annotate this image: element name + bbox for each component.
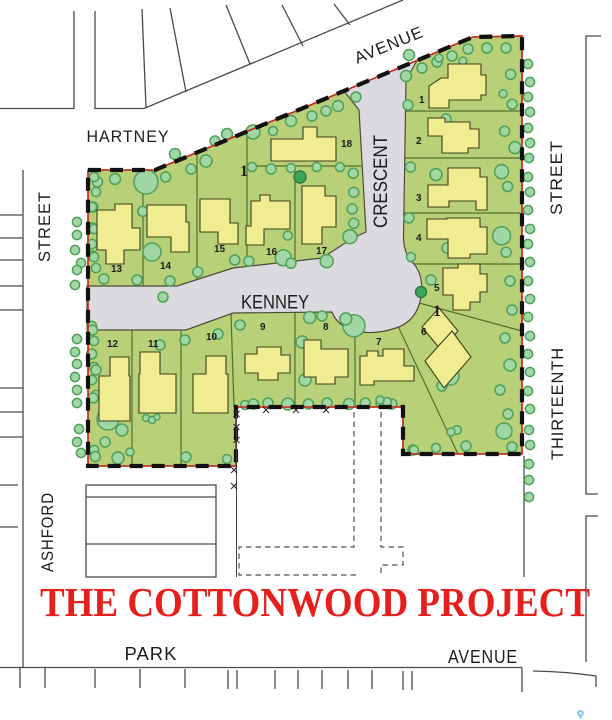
svg-text:14: 14 bbox=[160, 261, 172, 272]
svg-text:1: 1 bbox=[419, 95, 425, 106]
svg-text:ASHFORD: ASHFORD bbox=[39, 492, 57, 572]
svg-text:1: 1 bbox=[240, 163, 248, 180]
svg-text:THE COTTONWOOD PROJECT: THE COTTONWOOD PROJECT bbox=[40, 579, 590, 625]
svg-text:18: 18 bbox=[341, 139, 353, 150]
svg-text:7: 7 bbox=[376, 337, 382, 348]
svg-text:5: 5 bbox=[434, 283, 440, 294]
svg-text:CRESCENT: CRESCENT bbox=[371, 135, 392, 228]
svg-text:11: 11 bbox=[148, 339, 159, 350]
svg-text:STREET: STREET bbox=[36, 191, 54, 262]
svg-text:STREET: STREET bbox=[548, 140, 566, 215]
svg-text:THIRTEENTH: THIRTEENTH bbox=[549, 347, 567, 460]
svg-text:3: 3 bbox=[416, 193, 422, 204]
svg-text:6: 6 bbox=[421, 327, 427, 338]
svg-text:10: 10 bbox=[206, 332, 218, 343]
svg-text:16: 16 bbox=[266, 247, 278, 258]
svg-text:1: 1 bbox=[433, 303, 441, 320]
svg-text:9: 9 bbox=[260, 322, 266, 333]
svg-text:PARK: PARK bbox=[124, 643, 177, 664]
svg-text:12: 12 bbox=[107, 339, 119, 350]
svg-text:17: 17 bbox=[316, 246, 328, 257]
svg-text:13: 13 bbox=[111, 264, 123, 275]
svg-text:4: 4 bbox=[416, 233, 422, 244]
svg-text:8: 8 bbox=[323, 322, 329, 333]
svg-text:15: 15 bbox=[214, 244, 226, 255]
svg-text:2: 2 bbox=[416, 136, 422, 147]
svg-text:AVENUE: AVENUE bbox=[448, 646, 518, 667]
svg-text:KENNEY: KENNEY bbox=[241, 293, 309, 314]
svg-text:HARTNEY: HARTNEY bbox=[87, 128, 170, 146]
